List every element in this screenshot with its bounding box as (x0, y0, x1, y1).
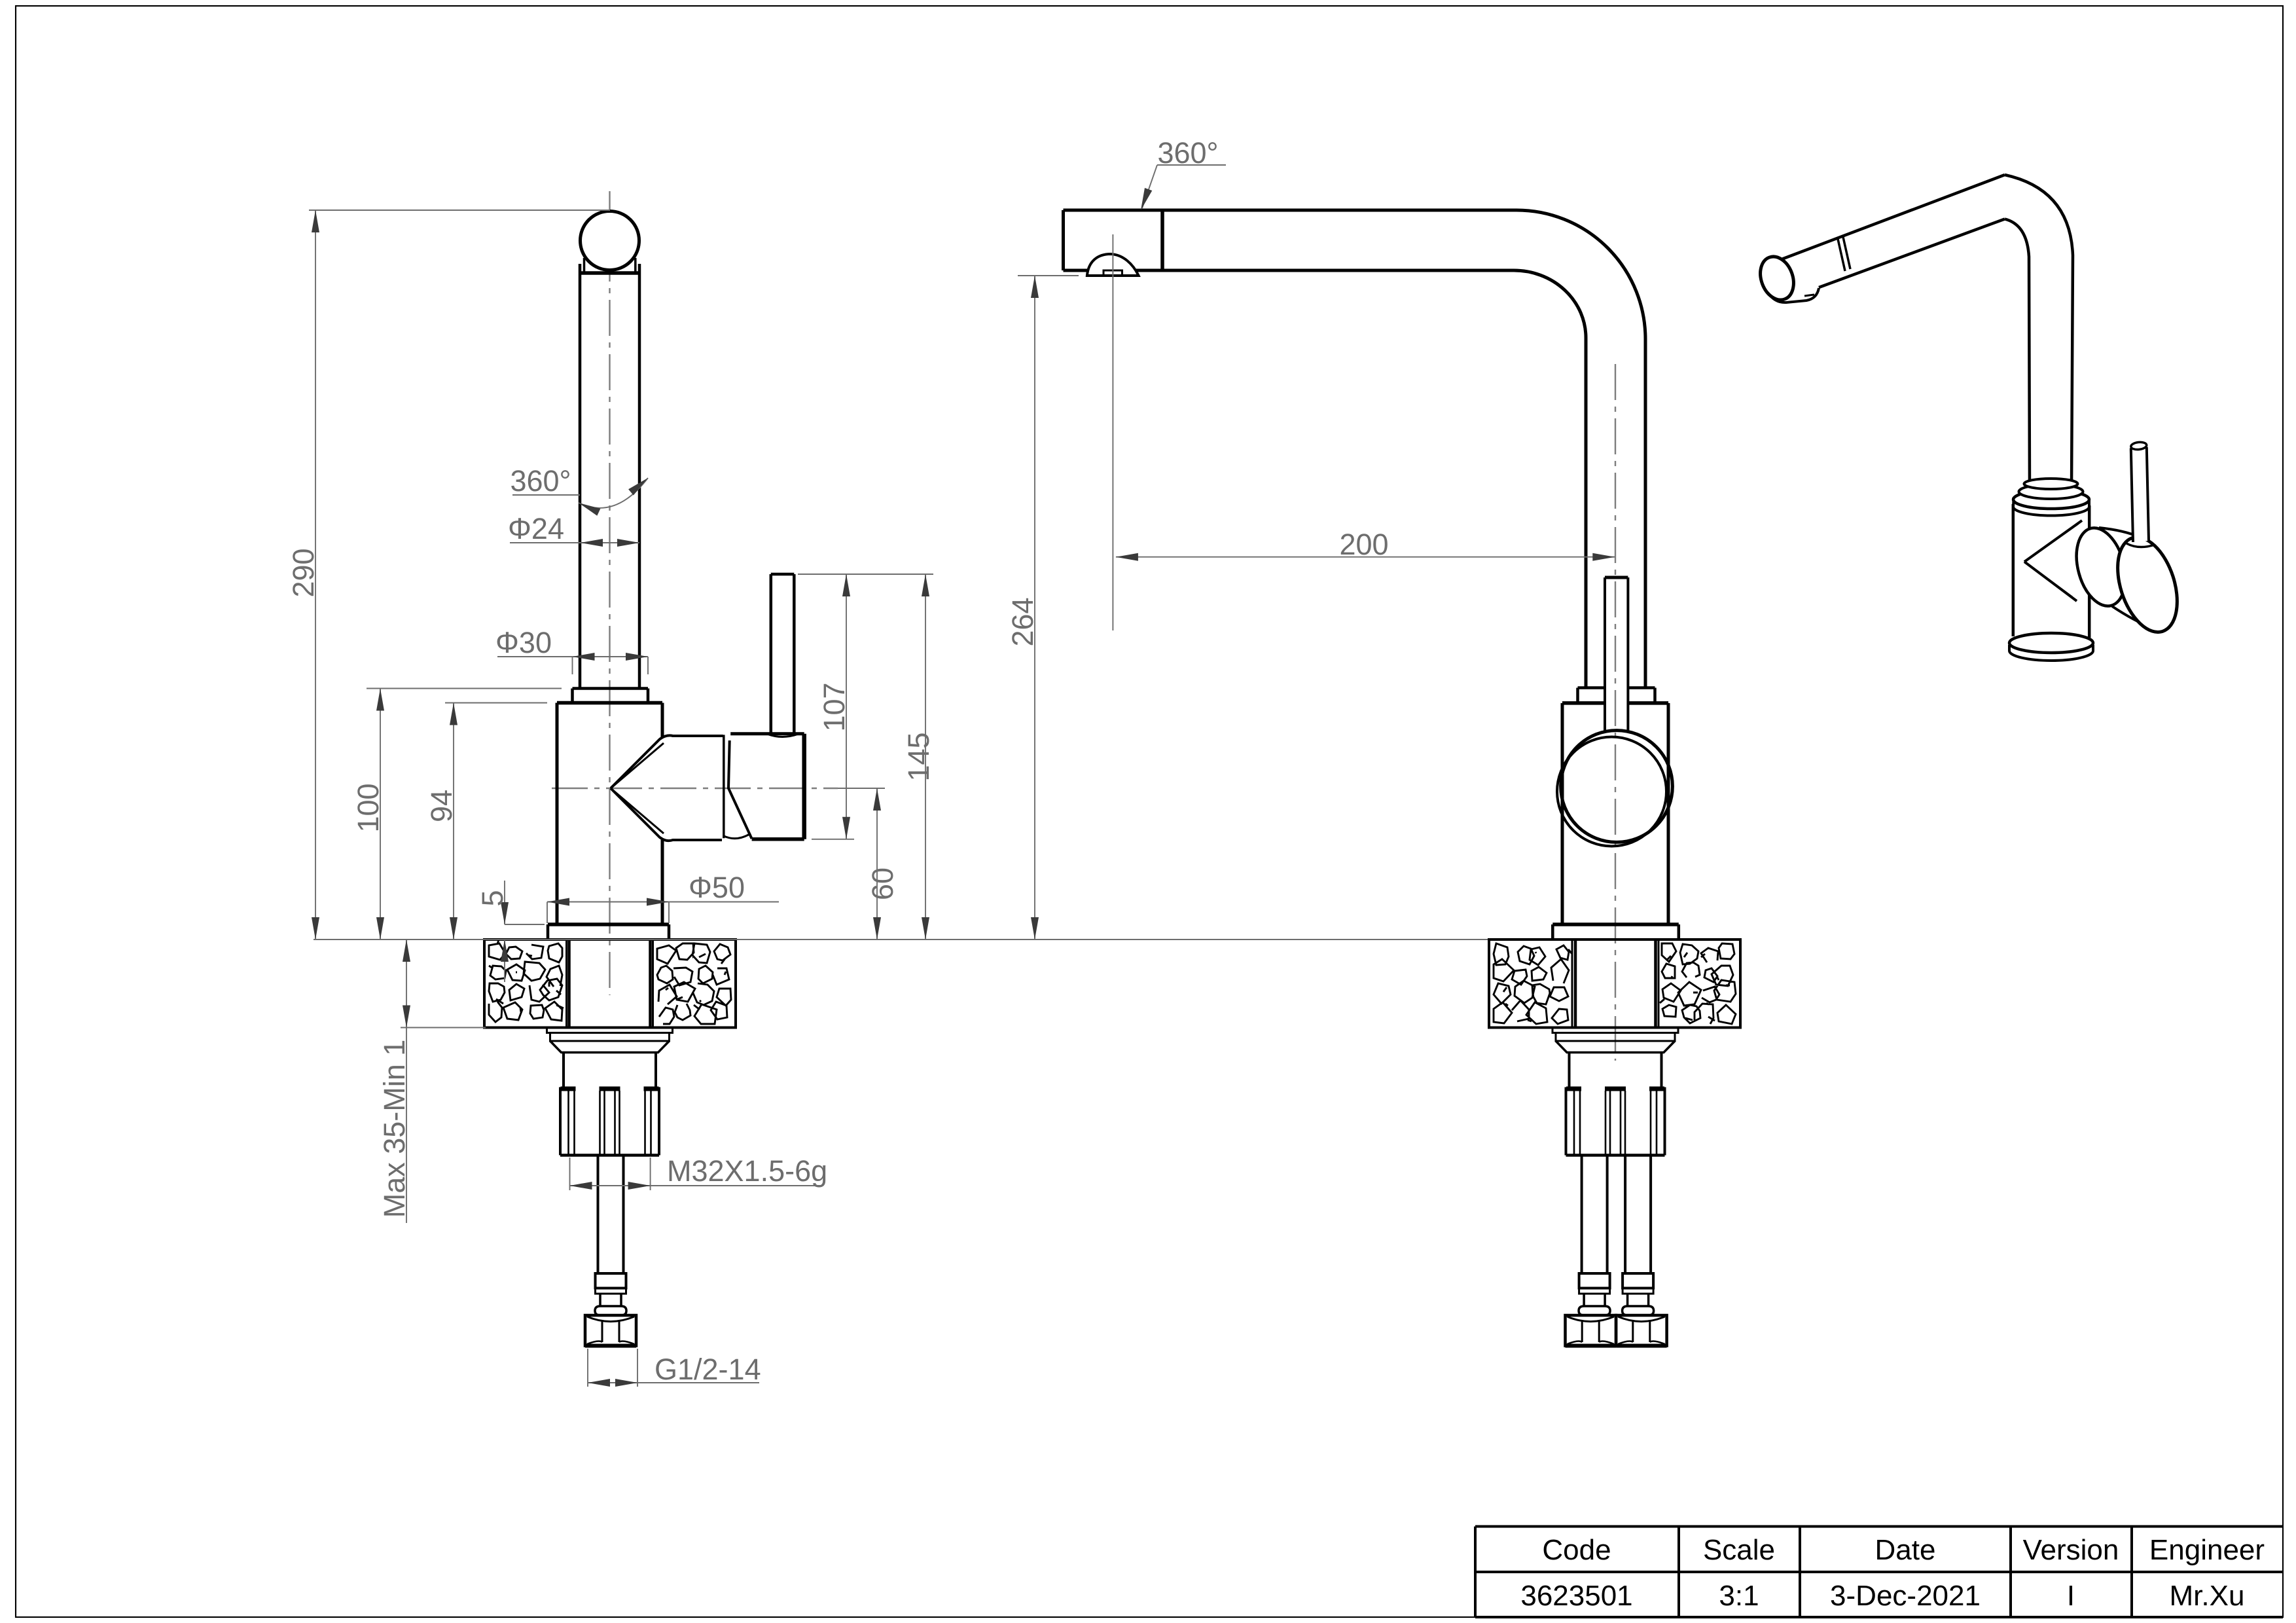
svg-text:200: 200 (1339, 528, 1388, 561)
svg-text:107: 107 (817, 682, 851, 731)
svg-text:Φ50: Φ50 (689, 871, 745, 904)
svg-text:5: 5 (476, 890, 509, 906)
svg-text:145: 145 (902, 732, 935, 781)
svg-text:3:1: 3:1 (1719, 1580, 1759, 1612)
svg-text:60: 60 (866, 867, 899, 900)
svg-text:I: I (2067, 1580, 2075, 1612)
svg-text:360°: 360° (510, 464, 571, 498)
svg-text:100: 100 (351, 783, 385, 832)
svg-text:Code: Code (1542, 1534, 1611, 1566)
svg-text:Mr.Xu: Mr.Xu (2170, 1580, 2245, 1612)
svg-text:3623501: 3623501 (1520, 1580, 1632, 1612)
svg-text:Φ30: Φ30 (495, 626, 552, 659)
svg-text:Date: Date (1875, 1534, 1936, 1566)
svg-text:Scale: Scale (1703, 1534, 1775, 1566)
svg-text:Max 35-Min 1: Max 35-Min 1 (378, 1040, 411, 1218)
svg-text:Φ24: Φ24 (508, 512, 564, 545)
svg-text:3-Dec-2021: 3-Dec-2021 (1830, 1580, 1981, 1612)
svg-text:94: 94 (425, 790, 458, 822)
svg-text:G1/2-14: G1/2-14 (655, 1353, 761, 1386)
svg-text:Version: Version (2023, 1534, 2119, 1566)
svg-text:290: 290 (287, 548, 320, 597)
svg-text:Engineer: Engineer (2149, 1534, 2265, 1566)
svg-text:M32X1.5-6g: M32X1.5-6g (667, 1154, 827, 1188)
svg-text:264: 264 (1006, 597, 1039, 646)
